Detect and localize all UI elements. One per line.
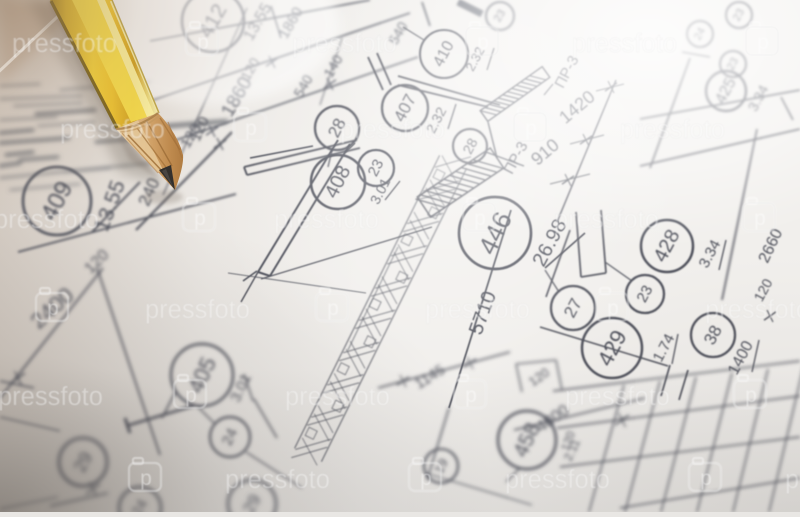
svg-text:pressfoto: pressfoto bbox=[225, 466, 330, 494]
svg-text:p: p bbox=[474, 207, 486, 230]
svg-text:p: p bbox=[420, 467, 432, 490]
svg-text:p: p bbox=[700, 467, 712, 490]
svg-text:pressfoto: pressfoto bbox=[0, 383, 103, 411]
svg-text:pressfoto: pressfoto bbox=[60, 116, 165, 144]
svg-text:p: p bbox=[754, 207, 766, 230]
svg-text:p: p bbox=[245, 117, 257, 140]
svg-text:pressfoto: pressfoto bbox=[565, 383, 670, 411]
svg-text:p: p bbox=[197, 31, 209, 54]
svg-text:pressfoto: pressfoto bbox=[505, 466, 610, 494]
svg-text:p: p bbox=[47, 297, 59, 320]
svg-text:pressfoto: pressfoto bbox=[0, 206, 99, 234]
svg-text:pressfoto: pressfoto bbox=[292, 30, 397, 58]
svg-text:pressfoto: pressfoto bbox=[572, 30, 677, 58]
svg-text:pressfoto: pressfoto bbox=[285, 383, 390, 411]
svg-text:pressfoto: pressfoto bbox=[425, 296, 530, 324]
svg-text:p: p bbox=[477, 31, 489, 54]
svg-text:pressfoto: pressfoto bbox=[785, 466, 800, 494]
svg-text:pressfoto: pressfoto bbox=[554, 206, 659, 234]
svg-text:p: p bbox=[757, 31, 769, 54]
svg-text:p: p bbox=[465, 384, 477, 407]
svg-text:pressfoto: pressfoto bbox=[705, 296, 800, 324]
svg-text:p: p bbox=[607, 297, 619, 320]
svg-text:pressfoto: pressfoto bbox=[620, 116, 725, 144]
svg-text:p: p bbox=[140, 467, 152, 490]
svg-text:p: p bbox=[327, 297, 339, 320]
svg-text:p: p bbox=[194, 207, 206, 230]
svg-text:pressfoto: pressfoto bbox=[274, 206, 379, 234]
svg-text:pressfoto: pressfoto bbox=[12, 30, 117, 58]
svg-text:p: p bbox=[525, 117, 537, 140]
svg-text:p: p bbox=[745, 384, 757, 407]
svg-text:pressfoto: pressfoto bbox=[145, 296, 250, 324]
svg-text:p: p bbox=[185, 384, 197, 407]
svg-text:pressfoto: pressfoto bbox=[340, 116, 445, 144]
